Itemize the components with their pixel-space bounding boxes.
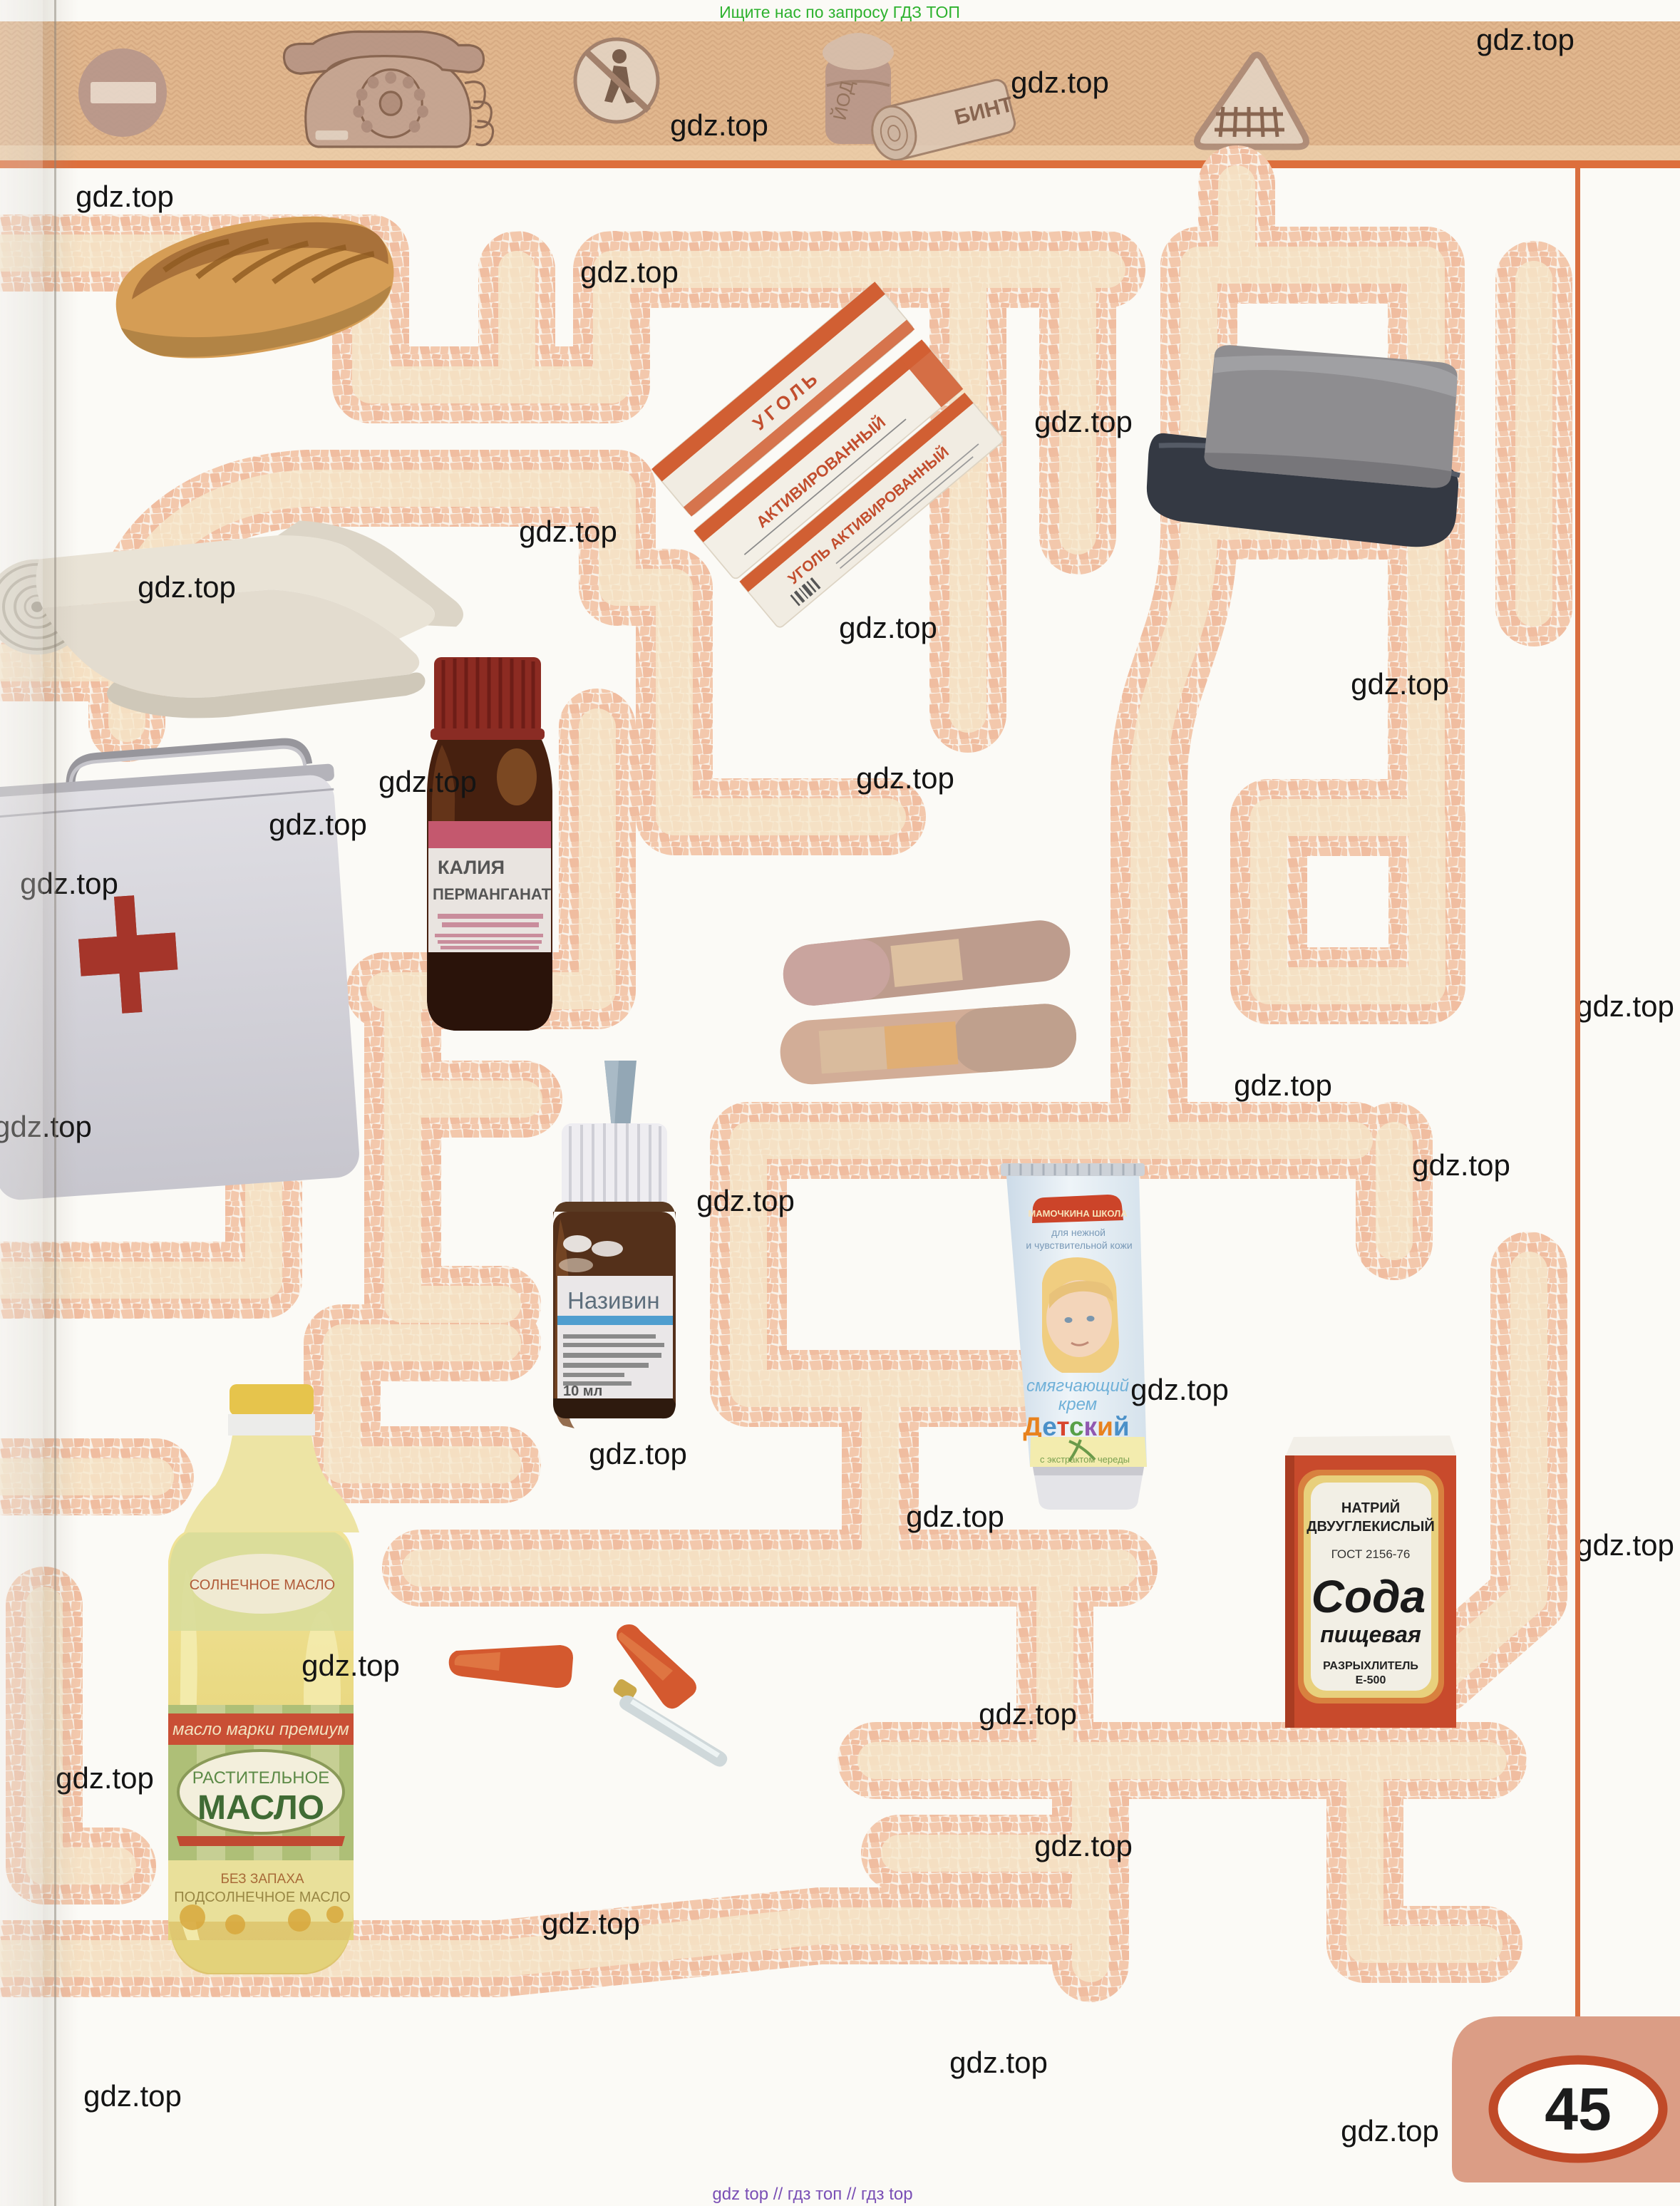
- svg-text:МАМОЧКИНА ШКОЛА: МАМОЧКИНА ШКОЛА: [1028, 1208, 1128, 1219]
- svg-text:gdz.top: gdz.top: [1034, 1829, 1133, 1862]
- svg-text:gdz.top: gdz.top: [302, 1649, 400, 1682]
- svg-text:БЕЗ ЗАПАХА: БЕЗ ЗАПАХА: [220, 1872, 304, 1887]
- svg-text:gdz.top: gdz.top: [1576, 1528, 1674, 1562]
- svg-text:ГОСТ 2156-76: ГОСТ 2156-76: [1331, 1547, 1411, 1561]
- svg-text:gdz.top: gdz.top: [1011, 66, 1109, 99]
- svg-text:gdz.top: gdz.top: [1234, 1068, 1332, 1102]
- svg-text:НАТРИЙ: НАТРИЙ: [1341, 1499, 1400, 1516]
- svg-text:ДВУУГЛЕКИСЛЫЙ: ДВУУГЛЕКИСЛЫЙ: [1307, 1517, 1435, 1535]
- svg-text:gdz.top: gdz.top: [542, 1907, 640, 1940]
- svg-text:Називин: Називин: [567, 1287, 660, 1314]
- svg-text:gdz.top: gdz.top: [1576, 989, 1674, 1023]
- svg-text:СОЛНЕЧНОЕ МАСЛО: СОЛНЕЧНОЕ МАСЛО: [190, 1577, 336, 1593]
- svg-text:Сода: Сода: [1311, 1571, 1426, 1622]
- svg-text:Е-500: Е-500: [1356, 1674, 1386, 1686]
- svg-text:gdz.top: gdz.top: [519, 515, 617, 548]
- svg-text:gdz.top: gdz.top: [269, 808, 367, 841]
- svg-text:gdz.top: gdz.top: [670, 108, 768, 142]
- svg-text:с экстрактом череды: с экстрактом череды: [1040, 1454, 1130, 1465]
- svg-text:gdz.top: gdz.top: [589, 1437, 687, 1470]
- svg-text:gdz.top: gdz.top: [76, 180, 174, 213]
- svg-text:gdz.top: gdz.top: [839, 611, 937, 644]
- svg-text:ПЕРМАНГАНАТ: ПЕРМАНГАНАТ: [433, 885, 552, 903]
- svg-text:крем: крем: [1058, 1395, 1097, 1414]
- svg-text:gdz.top: gdz.top: [856, 761, 954, 795]
- svg-text:gdz.top: gdz.top: [949, 2046, 1048, 2079]
- svg-text:gdz top // гдз топ // гдз: gdz top // гдз топ // гдз top: [712, 2185, 912, 2204]
- svg-text:Ищите нас по запросу ГДЗ ТОП: Ищите нас по запросу ГДЗ ТОП: [719, 3, 960, 21]
- svg-text:РАЗРЫХЛИТЕЛЬ: РАЗРЫХЛИТЕЛЬ: [1323, 1660, 1418, 1672]
- svg-text:и чувствительной кожи: и чувствительной кожи: [1026, 1239, 1132, 1251]
- svg-text:gdz.top: gdz.top: [979, 1697, 1077, 1731]
- svg-text:масло марки премиум: масло марки премиум: [172, 1720, 349, 1739]
- svg-text:ПОДСОЛНЕЧНОЕ МАСЛО: ПОДСОЛНЕЧНОЕ МАСЛО: [174, 1890, 351, 1905]
- svg-text:gdz.top: gdz.top: [378, 765, 477, 798]
- svg-text:РАСТИТЕЛЬНОЕ: РАСТИТЕЛЬНОЕ: [192, 1768, 330, 1788]
- svg-text:gdz.top: gdz.top: [83, 2079, 182, 2113]
- svg-text:gdz.top: gdz.top: [906, 1500, 1004, 1533]
- svg-text:45: 45: [1545, 2076, 1611, 2143]
- svg-text:gdz.top: gdz.top: [1130, 1373, 1229, 1406]
- svg-text:gdz.top: gdz.top: [580, 255, 679, 289]
- svg-text:смягчающий: смягчающий: [1026, 1376, 1129, 1396]
- svg-text:КАЛИЯ: КАЛИЯ: [438, 857, 505, 878]
- svg-text:для нежной: для нежной: [1051, 1227, 1106, 1238]
- svg-text:gdz.top: gdz.top: [1351, 667, 1449, 701]
- svg-text:пищевая: пищевая: [1320, 1622, 1421, 1647]
- svg-text:gdz.top: gdz.top: [696, 1184, 795, 1217]
- svg-text:МАСЛО: МАСЛО: [197, 1789, 324, 1827]
- svg-text:10 мл: 10 мл: [563, 1383, 602, 1399]
- svg-text:gdz.top: gdz.top: [138, 570, 236, 604]
- svg-text:gdz.top: gdz.top: [1034, 405, 1133, 438]
- svg-text:Детский: Детский: [1023, 1412, 1129, 1441]
- svg-text:gdz.top: gdz.top: [1341, 2114, 1439, 2148]
- svg-text:gdz.top: gdz.top: [1412, 1148, 1510, 1182]
- svg-text:gdz.top: gdz.top: [1476, 23, 1575, 56]
